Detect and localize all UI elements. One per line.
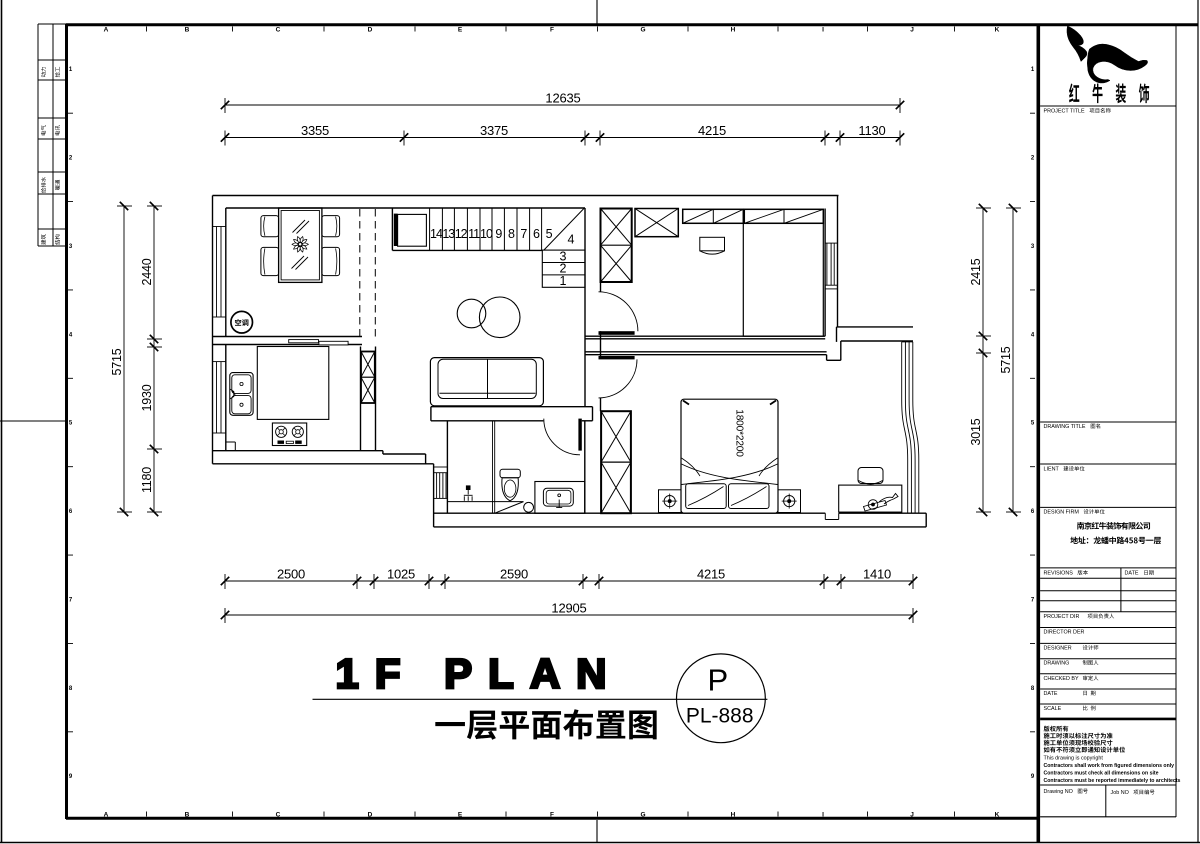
svg-text:D: D — [368, 812, 373, 819]
svg-text:K: K — [995, 812, 1000, 819]
svg-text:PROJECT TITLE: PROJECT TITLE — [1044, 109, 1086, 115]
svg-text:DESIGN FIRM: DESIGN FIRM — [1044, 510, 1080, 516]
svg-text:G: G — [640, 27, 645, 34]
svg-text:G: G — [640, 812, 645, 819]
svg-text:PL-888: PL-888 — [686, 705, 754, 728]
svg-text:This drawing is copyright: This drawing is copyright — [1044, 756, 1104, 762]
svg-text:DESIGNER: DESIGNER — [1044, 646, 1072, 652]
svg-text:A: A — [104, 812, 109, 819]
svg-text:Contractors shall work from fi: Contractors shall work from figured dime… — [1044, 763, 1175, 769]
svg-text:6: 6 — [533, 227, 540, 241]
svg-text:1180: 1180 — [140, 467, 154, 493]
svg-text:Job NO: Job NO — [1111, 790, 1129, 796]
svg-text:K: K — [995, 27, 1000, 34]
svg-text:I: I — [822, 27, 824, 34]
svg-text:2500: 2500 — [277, 567, 305, 582]
svg-text:J: J — [910, 27, 914, 34]
svg-text:B: B — [185, 812, 190, 819]
svg-text:E: E — [458, 812, 463, 819]
svg-text:1410: 1410 — [863, 567, 891, 582]
svg-text:P: P — [707, 663, 728, 698]
svg-text:DRAWING: DRAWING — [1044, 661, 1070, 667]
svg-text:4215: 4215 — [698, 123, 726, 138]
svg-text:11: 11 — [468, 227, 480, 241]
svg-text:H: H — [731, 27, 736, 34]
svg-text:F: F — [550, 812, 554, 819]
svg-text:DATE: DATE — [1125, 571, 1139, 577]
svg-text:1930: 1930 — [140, 384, 154, 411]
svg-text:DATE: DATE — [1044, 691, 1058, 697]
svg-text:4215: 4215 — [697, 567, 725, 582]
svg-text:1800*2200: 1800*2200 — [734, 409, 745, 457]
svg-text:2440: 2440 — [140, 258, 154, 285]
svg-text:9: 9 — [495, 227, 502, 241]
svg-text:Drawing NO: Drawing NO — [1044, 789, 1073, 795]
svg-text:J: J — [910, 812, 914, 819]
svg-text:3375: 3375 — [480, 123, 508, 138]
svg-text:3015: 3015 — [969, 418, 983, 445]
svg-text:C: C — [276, 27, 281, 34]
svg-text:REVISIONS: REVISIONS — [1044, 571, 1074, 577]
svg-text:14: 14 — [430, 227, 443, 241]
svg-text:3355: 3355 — [301, 123, 329, 138]
svg-text:7: 7 — [520, 227, 527, 241]
svg-text:F: F — [550, 27, 554, 34]
svg-text:5: 5 — [546, 227, 553, 241]
svg-text:5715: 5715 — [999, 346, 1013, 373]
svg-text:12635: 12635 — [545, 91, 580, 106]
svg-text:4: 4 — [568, 233, 575, 247]
svg-text:1025: 1025 — [387, 567, 415, 582]
svg-text:1F PLAN: 1F PLAN — [335, 650, 622, 697]
svg-text:B: B — [185, 27, 190, 34]
svg-text:5715: 5715 — [110, 348, 124, 375]
svg-text:12: 12 — [455, 227, 468, 241]
svg-text:Contractors must be reported i: Contractors must be reported immediately… — [1044, 778, 1181, 784]
svg-text:D: D — [368, 27, 373, 34]
svg-text:A: A — [104, 27, 109, 34]
svg-text:10: 10 — [480, 227, 493, 241]
svg-text:13: 13 — [442, 227, 455, 241]
svg-text:LIENT: LIENT — [1044, 467, 1060, 473]
svg-text:I: I — [822, 812, 824, 819]
svg-text:8: 8 — [508, 227, 515, 241]
svg-text:2415: 2415 — [969, 258, 983, 285]
svg-text:DIRECTOR DER: DIRECTOR DER — [1044, 630, 1085, 636]
svg-text:1: 1 — [560, 274, 567, 288]
svg-text:H: H — [731, 812, 736, 819]
svg-text:2590: 2590 — [500, 567, 528, 582]
svg-text:DRAWING TITLE: DRAWING TITLE — [1044, 424, 1086, 430]
svg-text:1130: 1130 — [858, 123, 885, 138]
svg-text:12905: 12905 — [551, 601, 586, 616]
svg-text:E: E — [458, 27, 463, 34]
svg-text:CHECKED BY: CHECKED BY — [1044, 676, 1079, 682]
svg-text:PROJECT DIR: PROJECT DIR — [1044, 614, 1080, 620]
svg-text:C: C — [276, 812, 281, 819]
svg-text:SCALE: SCALE — [1044, 706, 1062, 712]
svg-text:Contractors must check all dim: Contractors must check all dimensions on… — [1044, 771, 1159, 777]
